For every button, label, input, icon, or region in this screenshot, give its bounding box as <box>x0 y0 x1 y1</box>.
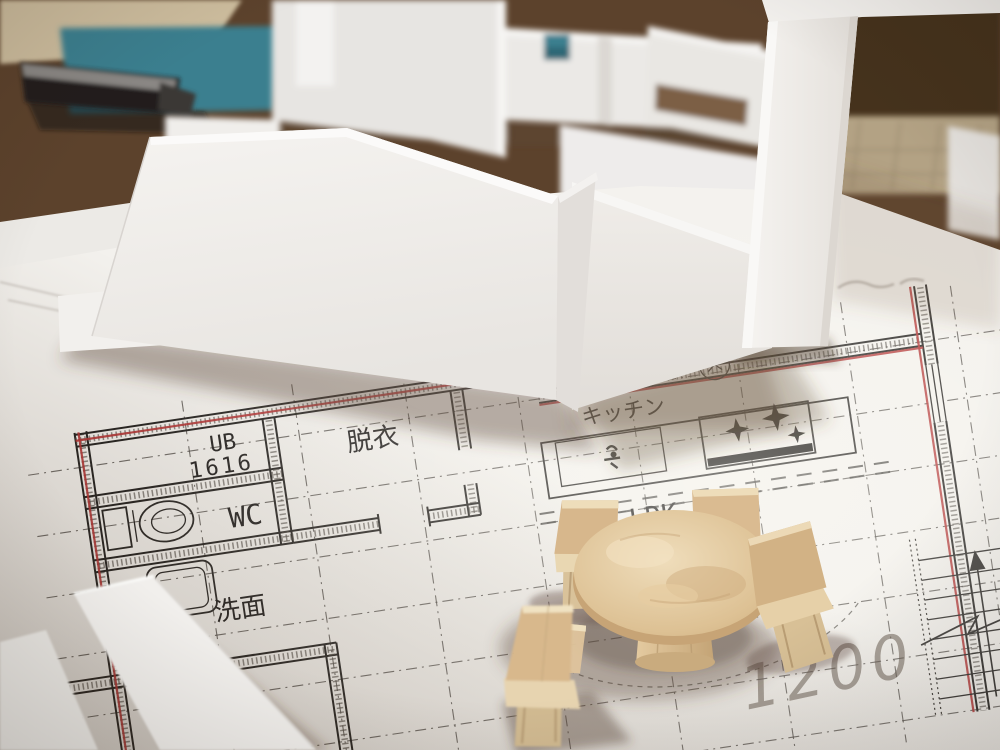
photo-canvas: UB 1616 脱衣 WC 洗面 キッチン LDK 1200 <box>0 0 1000 750</box>
vignette <box>0 0 1000 750</box>
photo-architectural-model-scene: UB 1616 脱衣 WC 洗面 キッチン LDK 1200 <box>0 0 1000 750</box>
